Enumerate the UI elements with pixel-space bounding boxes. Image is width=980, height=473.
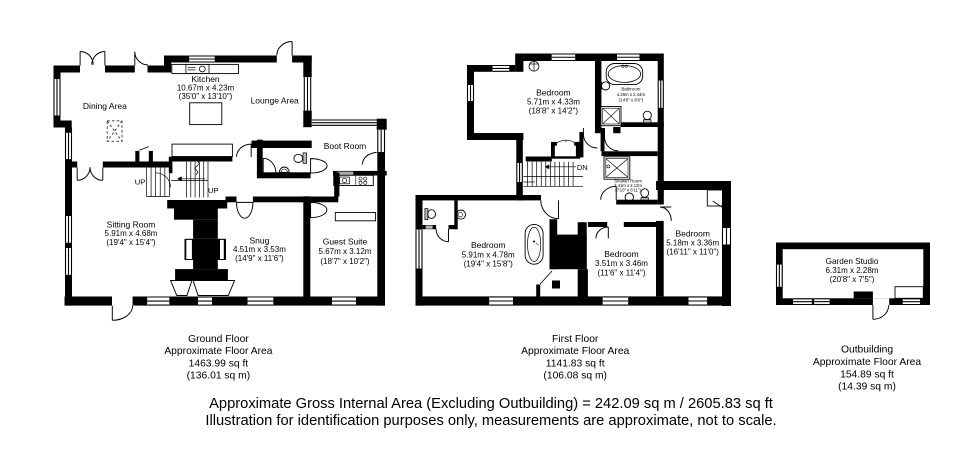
svg-text:Bedroom: Bedroom — [675, 229, 710, 239]
svg-text:(18'8" x 14'2"): (18'8" x 14'2") — [529, 106, 579, 115]
svg-text:(35'0" x 13'10"): (35'0" x 13'10") — [179, 92, 233, 101]
svg-text:Illustration for identificatio: Illustration for identification purposes… — [205, 413, 776, 429]
svg-text:154.89 sq ft: 154.89 sq ft — [840, 369, 894, 380]
svg-text:Guest Suite: Guest Suite — [323, 237, 368, 247]
svg-text:Sitting Room: Sitting Room — [107, 219, 156, 229]
svg-text:1463.99 sq ft: 1463.99 sq ft — [189, 358, 249, 369]
svg-text:(14'0" x 8'0"): (14'0" x 8'0") — [619, 98, 644, 103]
svg-text:DN: DN — [577, 163, 588, 172]
svg-text:Approximate Floor Area: Approximate Floor Area — [164, 346, 272, 357]
svg-text:Approximate Gross Internal Are: Approximate Gross Internal Area (Excludi… — [209, 396, 773, 412]
svg-text:(136.01 sq m): (136.01 sq m) — [187, 371, 251, 382]
svg-text:Dining Area: Dining Area — [83, 101, 127, 111]
svg-text:(20'8" x 7'5"): (20'8" x 7'5") — [830, 275, 875, 284]
svg-text:(19'4" x 15'8"): (19'4" x 15'8") — [464, 259, 514, 268]
svg-text:1141.83 sq ft: 1141.83 sq ft — [546, 358, 605, 369]
svg-text:5.18m x 3.36m: 5.18m x 3.36m — [666, 239, 719, 248]
svg-text:UP: UP — [208, 186, 219, 195]
svg-text:Bedroom: Bedroom — [536, 87, 571, 97]
svg-text:Ground Floor: Ground Floor — [188, 334, 249, 345]
svg-text:5.91m x 4.78m: 5.91m x 4.78m — [462, 250, 515, 259]
svg-text:5.67m x 3.12m: 5.67m x 3.12m — [319, 247, 372, 256]
svg-text:5.91m x 4.68m: 5.91m x 4.68m — [105, 229, 158, 238]
svg-text:(14.39 sq m): (14.39 sq m) — [838, 382, 896, 393]
svg-text:First Floor: First Floor — [552, 334, 599, 345]
svg-text:UP: UP — [135, 177, 146, 186]
svg-text:Approximate Floor Area: Approximate Floor Area — [521, 346, 629, 357]
svg-text:Snug: Snug — [249, 235, 269, 245]
svg-text:Outbuilding: Outbuilding — [841, 345, 893, 356]
svg-text:Boot Room: Boot Room — [324, 141, 367, 151]
svg-text:5.71m x 4.33m: 5.71m x 4.33m — [527, 97, 580, 106]
svg-text:(106.08 sq m): (106.08 sq m) — [543, 371, 607, 382]
svg-text:Garden Studio: Garden Studio — [826, 257, 879, 266]
svg-text:4.51m x 3.53m: 4.51m x 3.53m — [233, 245, 286, 254]
svg-text:(19'4" x 15'4"): (19'4" x 15'4") — [106, 238, 156, 247]
svg-text:Bedroom: Bedroom — [471, 240, 506, 250]
svg-text:6.31m x 2.28m: 6.31m x 2.28m — [826, 266, 879, 275]
svg-text:Bedroom: Bedroom — [604, 249, 639, 259]
svg-text:(14'9" x 11'6"): (14'9" x 11'6") — [235, 254, 284, 263]
svg-text:(16'11" x 11'0"): (16'11" x 11'0") — [666, 248, 719, 257]
svg-text:(18'7" x 10'2"): (18'7" x 10'2") — [320, 257, 370, 266]
svg-text:Lounge Area: Lounge Area — [251, 95, 299, 105]
svg-text:3.51m x 3.46m: 3.51m x 3.46m — [595, 259, 648, 268]
svg-text:4.28m x 2.44m: 4.28m x 2.44m — [617, 92, 646, 97]
svg-text:Approximate Floor Area: Approximate Floor Area — [813, 357, 921, 368]
svg-text:(11'6" x 11'4"): (11'6" x 11'4") — [597, 268, 645, 277]
svg-text:(7'10" x 6'11"): (7'10" x 6'11") — [615, 188, 641, 193]
